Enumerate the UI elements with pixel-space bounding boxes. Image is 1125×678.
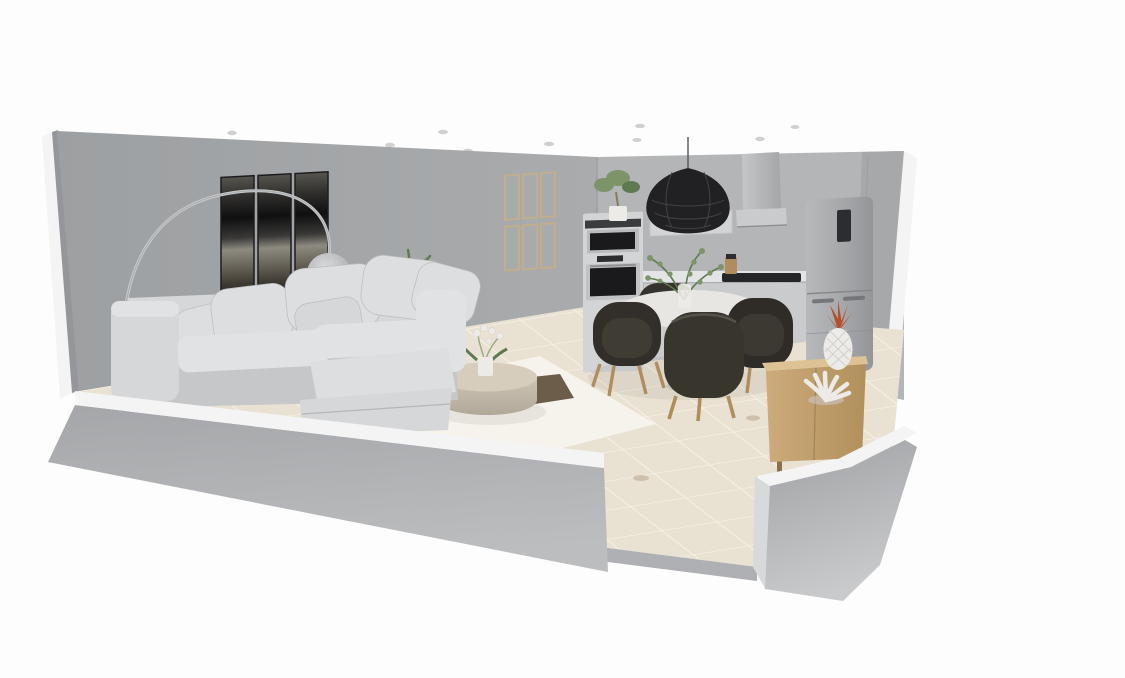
knife-handles [726, 254, 736, 259]
knife-block-body [725, 257, 737, 274]
ceiling-spotlight [544, 142, 554, 146]
hood-chimney [742, 152, 781, 212]
ceiling-spotlight [755, 137, 765, 141]
wall-frame [523, 173, 537, 218]
ceiling-spotlight [633, 138, 642, 142]
ceiling-spotlight [635, 124, 645, 128]
wall-frame [505, 226, 519, 271]
plant-pot [609, 206, 627, 221]
chair-shell [664, 312, 744, 398]
oven-control-strip [597, 255, 623, 262]
cooktop[interactable] [722, 273, 801, 282]
chair-seat [602, 318, 652, 358]
range-hood[interactable] [736, 152, 787, 228]
dollhouse-3d-render [0, 0, 1125, 678]
ceiling-spotlight [438, 130, 448, 134]
knife-block[interactable] [725, 254, 737, 274]
fridge-control-panel [837, 209, 851, 242]
vase [678, 284, 691, 308]
plant-foliage [622, 181, 640, 193]
microwave-window [590, 232, 635, 251]
wall-frame [541, 223, 555, 268]
sofa-left-arm-top [111, 301, 179, 317]
ceiling-spotlight [791, 125, 800, 129]
ceiling-spotlight [227, 131, 237, 135]
wall-frame [541, 172, 555, 217]
room-render-canvas [0, 0, 1125, 678]
floor-stain [746, 415, 760, 420]
wall-frame [523, 224, 537, 269]
ceiling-spotlight [385, 143, 395, 147]
wall-frame [505, 175, 519, 220]
oven-window [590, 267, 636, 297]
orchid-pot [478, 357, 493, 376]
floor-stain [633, 475, 649, 481]
chair-leg [698, 398, 700, 421]
